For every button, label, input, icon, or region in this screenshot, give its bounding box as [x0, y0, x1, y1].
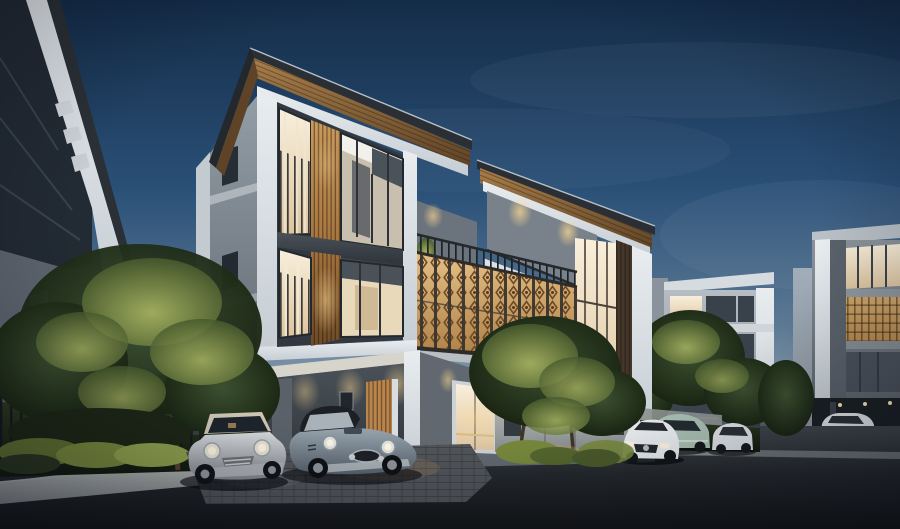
- townhouse-dusk-render: [0, 0, 900, 529]
- scene-canvas: [0, 0, 900, 529]
- vignette-overlay: [0, 0, 900, 529]
